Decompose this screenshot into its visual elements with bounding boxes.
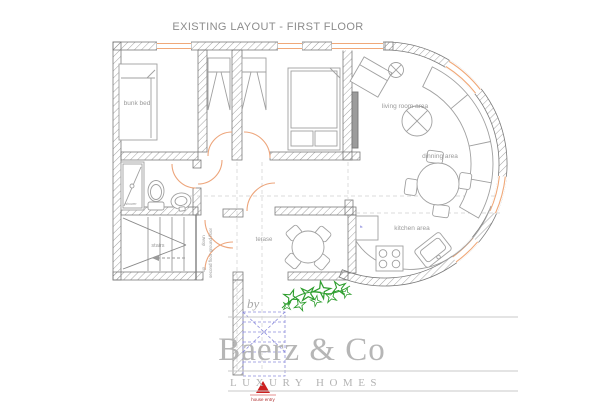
- door-dressing: [208, 132, 232, 156]
- label-shower: shower: [125, 202, 137, 206]
- door-terrace: [247, 183, 275, 211]
- wall-top-c: [302, 42, 332, 50]
- wall-bunk-dressing: [198, 50, 207, 152]
- label-living-room: living room area: [382, 103, 429, 110]
- double-bed: [288, 68, 340, 150]
- label-stairs: stairs: [151, 243, 164, 249]
- label-bunk-bed: bunk bed: [124, 100, 151, 107]
- wall-bath-jamb-top: [193, 160, 201, 168]
- label-stairs-down-to: ground floor: [208, 227, 213, 252]
- terrace: [284, 224, 332, 271]
- label-stairs-up-to: second floor: [208, 253, 213, 278]
- wall-bottom-c: [288, 272, 348, 280]
- wall-hall-kitchen: [275, 207, 356, 215]
- plants: [280, 277, 352, 313]
- wall-hall-terrace-stub: [223, 209, 243, 217]
- logo-by: by: [247, 296, 260, 311]
- wall-dressing-bedroom: [232, 50, 242, 160]
- label-fridge: fr.: [360, 224, 363, 229]
- logo-name: Baerz & Co: [218, 332, 386, 368]
- toilet: [148, 181, 164, 211]
- wall-top-b: [191, 42, 278, 50]
- label-stairs-down: down: [201, 235, 206, 246]
- wall-top-a: [113, 42, 157, 50]
- wall-bunkroom-south: [121, 152, 198, 160]
- door-bedroom: [244, 132, 270, 158]
- wall-terrace-kitchen: [348, 215, 356, 273]
- door-bathroom: [172, 164, 196, 188]
- label-terrace: terase: [256, 237, 273, 243]
- logo-tagline: LUXURY HOMES: [230, 377, 382, 389]
- wardrobe-bedroom: [242, 58, 266, 110]
- terrace-table: [292, 231, 324, 263]
- wall-bedroom-east: [343, 50, 352, 160]
- label-kitchen: kitchen area: [394, 225, 430, 232]
- wall-bottom-a: [113, 272, 203, 280]
- label-stairs-up: up: [201, 266, 206, 272]
- wall-bath-jamb-bottom: [193, 188, 201, 215]
- page-title: EXISTING LAYOUT - FIRST FLOOR: [172, 21, 363, 33]
- brand-logo: by Baerz & Co LUXURY HOMES: [218, 296, 518, 391]
- stove: [376, 246, 403, 271]
- dining-chair: [404, 178, 418, 196]
- wardrobe-dressing: [208, 58, 230, 110]
- wall-bottom-b: [233, 272, 243, 280]
- entry-label: house entry: [251, 397, 275, 402]
- ceiling-light-small: [389, 63, 404, 78]
- armchair: [350, 57, 392, 97]
- dining-chair: [458, 172, 472, 190]
- ceiling-light-large: [402, 106, 432, 136]
- label-dining: dinning area: [422, 153, 458, 160]
- door-hall-a: [198, 160, 222, 184]
- dining-chair: [432, 204, 450, 218]
- radiator: [352, 92, 358, 148]
- floor-plan-drawing: house entry bunk bed living room area di…: [0, 0, 600, 410]
- floor-plan-page: house entry bunk bed living room area di…: [0, 0, 600, 410]
